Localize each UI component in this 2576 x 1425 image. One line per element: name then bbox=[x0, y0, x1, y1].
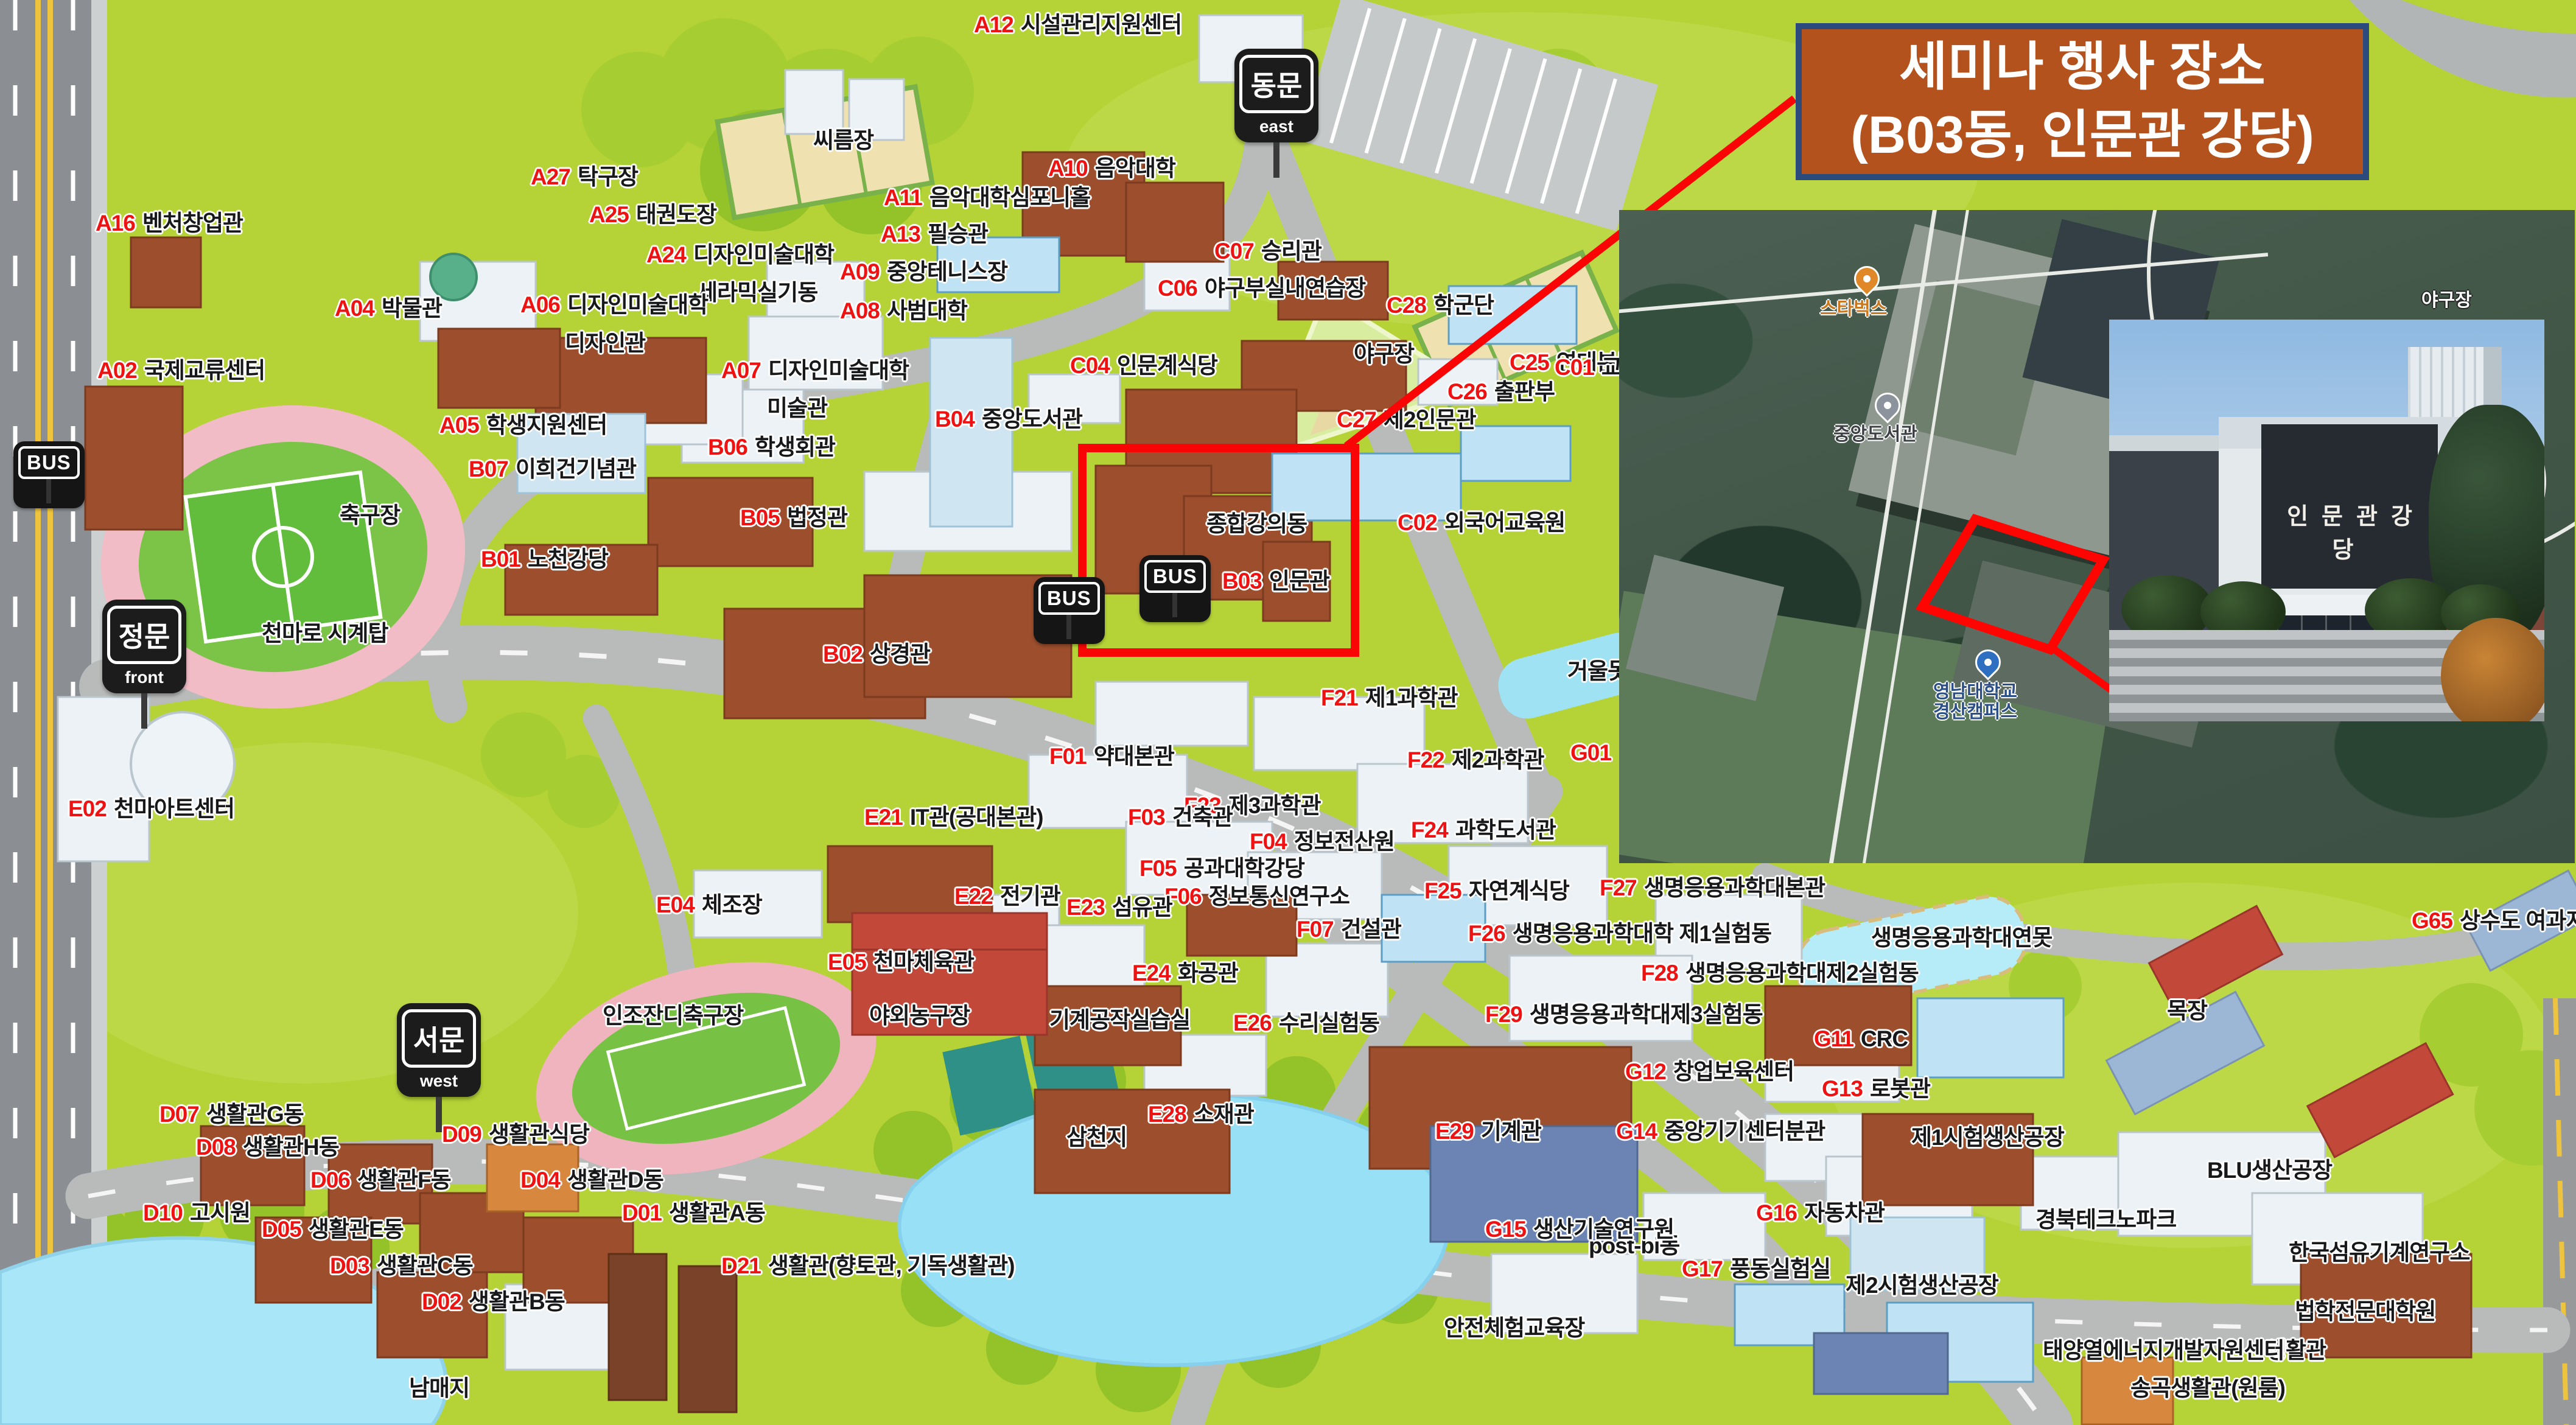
building-name: 탁구장 bbox=[578, 164, 638, 189]
building-name: 수리실험동 bbox=[1279, 1010, 1379, 1035]
gate-name: 정문 bbox=[107, 606, 181, 664]
map-label-B04: B04중앙도서관 bbox=[935, 408, 1082, 430]
building-name: 승리관 bbox=[1261, 239, 1321, 264]
map-label-천마로 시계탑: 천마로 시계탑 bbox=[262, 622, 388, 645]
satellite-poi-label: 중앙도서관 bbox=[1833, 424, 1917, 444]
building-code: F04 bbox=[1250, 829, 1287, 854]
building-name: 학생회관 bbox=[755, 435, 835, 460]
building-code: A02 bbox=[97, 358, 137, 383]
map-label-미술관: 미술관 bbox=[767, 397, 827, 419]
map-label-F04: F04정보전산원 bbox=[1250, 830, 1395, 853]
map-label-G16: G16자동차관 bbox=[1756, 1202, 1885, 1224]
gate-pole bbox=[1273, 142, 1279, 178]
building-code: B06 bbox=[708, 435, 747, 460]
building-code: A27 bbox=[531, 164, 570, 189]
building-name: 벤처창업관 bbox=[142, 211, 243, 236]
seminar-location-callout: 세미나 행사 장소 (B03동, 인문관 강당) bbox=[1796, 23, 2369, 180]
building-code: E05 bbox=[828, 950, 866, 975]
map-label-야외농구장: 야외농구장 bbox=[869, 1004, 970, 1027]
map-label-A16: A16벤처창업관 bbox=[96, 212, 243, 234]
map-label-G15: G15생산기술연구원 bbox=[1485, 1218, 1674, 1241]
building-code: B04 bbox=[935, 407, 975, 432]
building-name: 국제교류센터 bbox=[144, 358, 265, 383]
building-code: C02 bbox=[1398, 510, 1437, 535]
building-name: 약대본관 bbox=[1094, 744, 1174, 769]
bus-sign-pole bbox=[1172, 593, 1177, 617]
map-label-D08: D08생활관H동 bbox=[196, 1136, 339, 1158]
map-label-안전체험교육장: 안전체험교육장 bbox=[1444, 1317, 1584, 1339]
building-code: B07 bbox=[469, 457, 508, 481]
building-name: 시설관리지원센터 bbox=[1021, 12, 1181, 37]
building-name: 자동차관 bbox=[1804, 1200, 1885, 1225]
building-name: 창업보육센터 bbox=[1673, 1059, 1794, 1084]
bus-stop-label: BUS bbox=[18, 446, 80, 479]
building-name: 생활관(향토관, 기독생활관) bbox=[768, 1253, 1015, 1278]
map-label-F07: F07건설관 bbox=[1297, 918, 1401, 940]
map-label-야구장: 야구장 bbox=[1354, 343, 1414, 365]
building-code: G13 bbox=[1822, 1076, 1863, 1101]
building-code: G15 bbox=[1485, 1217, 1526, 1242]
building-code: E22 bbox=[954, 884, 993, 909]
building-name: 음악대학 bbox=[1095, 156, 1175, 181]
building-name: 종합강의동 bbox=[1206, 511, 1307, 536]
map-label-F27: F27생명응용과학대본관 bbox=[1600, 877, 1825, 899]
map-label-인조잔디축구장: 인조잔디축구장 bbox=[603, 1004, 743, 1027]
map-label-D02: D02생활관B동 bbox=[422, 1290, 565, 1313]
map-label-E04: E04체조장 bbox=[656, 894, 762, 916]
building-name: 건축관 bbox=[1172, 805, 1233, 830]
building-code: D01 bbox=[622, 1200, 662, 1225]
map-label-G01: G01 bbox=[1570, 741, 1619, 764]
building-code: A04 bbox=[335, 296, 374, 321]
building-code: A13 bbox=[881, 222, 920, 247]
map-label-E22: E22전기관 bbox=[954, 885, 1060, 908]
building-name: 공과대학강당 bbox=[1184, 856, 1304, 881]
map-label-경북테크노파크: 경북테크노파크 bbox=[2035, 1208, 2176, 1231]
map-label-C27: C27제2인문관 bbox=[1337, 408, 1476, 431]
map-label-C06: C06야구부실내연습장 bbox=[1158, 277, 1365, 299]
building-name: 생명응용과학대제2실험동 bbox=[1685, 961, 1919, 986]
gate-name-en: front bbox=[107, 664, 181, 688]
callout-line1: 세미나 행사 장소 bbox=[1899, 33, 2266, 102]
building-code: D10 bbox=[143, 1200, 183, 1225]
building-name: 생명응용과학대제3실험동 bbox=[1530, 1002, 1763, 1027]
map-label-A04: A04박물관 bbox=[335, 297, 442, 320]
building-name: 전기관 bbox=[1000, 884, 1060, 909]
map-label-D10: D10고시원 bbox=[143, 1202, 250, 1224]
building-code: D08 bbox=[196, 1135, 236, 1160]
building-name: 화공관 bbox=[1178, 961, 1238, 986]
building-code: F26 bbox=[1468, 921, 1505, 946]
map-label-D06: D06생활관F동 bbox=[310, 1169, 451, 1191]
building-code: E26 bbox=[1233, 1010, 1272, 1035]
building-code: A07 bbox=[721, 358, 761, 383]
building-name: 로봇관 bbox=[1870, 1076, 1930, 1101]
map-label-기계공작실습실: 기계공작실습실 bbox=[1049, 1009, 1190, 1031]
building-code: A12 bbox=[974, 12, 1013, 37]
building-code: E28 bbox=[1148, 1102, 1186, 1127]
building-name: 법정관 bbox=[787, 505, 847, 530]
bus-sign-pole bbox=[1066, 615, 1071, 639]
building-name: 박물관 bbox=[382, 296, 442, 321]
building-name: 상수도 여과지 bbox=[2460, 908, 2576, 933]
satellite-poi-label: 스타벅스 bbox=[1820, 299, 1887, 319]
building-name: 생활관G동 bbox=[206, 1102, 304, 1127]
map-label-축구장: 축구장 bbox=[340, 504, 400, 527]
gate-pole bbox=[436, 1097, 442, 1132]
building-name: 천마아트센터 bbox=[114, 796, 234, 821]
building-name: 생활관F동 bbox=[357, 1168, 451, 1192]
map-label-G17: G17풍동실험실 bbox=[1682, 1258, 1830, 1280]
building-name: 중앙기기센터분관 bbox=[1664, 1119, 1825, 1144]
building-name: 디자인미술대학 bbox=[693, 242, 834, 267]
map-label-G13: G13로봇관 bbox=[1822, 1077, 1930, 1100]
map-label-A24: A24디자인미술대학 bbox=[646, 243, 834, 266]
building-name: 건설관 bbox=[1341, 917, 1401, 942]
building-code: A05 bbox=[439, 413, 479, 438]
map-label-C26: C26출판부 bbox=[1447, 380, 1555, 403]
map-label-제1시험생산공장: 제1시험생산공장 bbox=[1911, 1126, 2064, 1149]
map-label-F24: F24과학도서관 bbox=[1411, 819, 1556, 841]
map-label-E21: E21IT관(공대본관) bbox=[864, 806, 1043, 828]
building-name: 법학전문대학원 bbox=[2295, 1299, 2435, 1324]
map-label-D07: D07생활관G동 bbox=[159, 1103, 304, 1126]
building-name: 사범대학 bbox=[887, 298, 967, 323]
building-name: IT관(공대본관) bbox=[910, 805, 1043, 830]
building-code: A25 bbox=[589, 202, 629, 227]
building-code: F27 bbox=[1600, 875, 1637, 900]
building-code: A06 bbox=[520, 292, 560, 317]
gate-name: 동문 bbox=[1239, 55, 1314, 113]
building-name: 제2인문관 bbox=[1384, 407, 1476, 432]
map-label-A12: A12시설관리지원센터 bbox=[974, 13, 1181, 36]
map-label-E26: E26수리실험동 bbox=[1233, 1012, 1379, 1034]
map-label-A07: A07디자인미술대학 bbox=[721, 359, 909, 382]
map-label-법학전문대학원: 법학전문대학원 bbox=[2295, 1300, 2435, 1323]
building-name: 천마체육관 bbox=[873, 950, 974, 975]
map-label-E29: E29기계관 bbox=[1435, 1120, 1541, 1143]
building-photo-inset: 인문관강당 bbox=[2109, 320, 2544, 721]
map-label-G65: G65상수도 여과지 bbox=[2412, 909, 2576, 932]
building-name: 상경관 bbox=[870, 642, 930, 667]
campus-map-page: { "colors":{"accent_red":"#f90505","code… bbox=[0, 0, 2576, 1425]
map-label-F26: F26생명응용과학대학 제1실험동 bbox=[1468, 922, 1771, 945]
building-name: 태권도장 bbox=[636, 202, 716, 227]
satellite-poi-label: 영남대학교경산캠퍼스 bbox=[1933, 682, 2017, 722]
building-code: D02 bbox=[422, 1289, 461, 1314]
map-label-송곡생활관(원룸): 송곡생활관(원룸) bbox=[2130, 1377, 2285, 1399]
building-name: 제2시험생산공장 bbox=[1846, 1273, 1998, 1298]
building-code: F25 bbox=[1424, 878, 1461, 903]
building-code: G16 bbox=[1756, 1200, 1797, 1225]
building-name: 음악대학심포니홀 bbox=[929, 185, 1090, 210]
map-label-생명응용과학대연못: 생명응용과학대연못 bbox=[1871, 926, 2052, 949]
building-code: E04 bbox=[656, 892, 695, 917]
building-code: C07 bbox=[1214, 239, 1254, 264]
map-label-A09: A09중앙테니스장 bbox=[840, 261, 1007, 283]
map-label-A08: A08사범대학 bbox=[840, 299, 967, 322]
building-code: F07 bbox=[1297, 917, 1334, 942]
map-label-C04: C04인문계식당 bbox=[1070, 354, 1217, 377]
building-name: 학군단 bbox=[1433, 293, 1494, 318]
map-label-F05: F05공과대학강당 bbox=[1139, 857, 1304, 880]
building-code: D05 bbox=[262, 1217, 301, 1242]
building-name: 생활관H동 bbox=[243, 1135, 339, 1160]
building-code: C25 bbox=[1510, 350, 1549, 375]
map-label-목장: 목장 bbox=[2167, 1000, 2207, 1022]
map-label-G12: G12창업보육센터 bbox=[1625, 1060, 1794, 1083]
map-label-D01: D01생활관A동 bbox=[622, 1202, 765, 1224]
map-label-씨름장: 씨름장 bbox=[813, 129, 873, 152]
building-name: 야구장 bbox=[1354, 341, 1414, 366]
map-label-F22: F22제2과학관 bbox=[1407, 749, 1544, 771]
building-code: D03 bbox=[330, 1253, 369, 1278]
bus-stop-label: BUS bbox=[1144, 560, 1206, 593]
building-name: 필승관 bbox=[928, 222, 988, 247]
map-label-E28: E28소재관 bbox=[1148, 1103, 1254, 1126]
map-label-한국섬유기계연구소: 한국섬유기계연구소 bbox=[2289, 1241, 2469, 1264]
building-code: B01 bbox=[481, 547, 520, 572]
building-code: F21 bbox=[1321, 685, 1358, 710]
building-code: A10 bbox=[1048, 156, 1088, 181]
map-label-E24: E24화공관 bbox=[1132, 962, 1238, 984]
building-code: E23 bbox=[1066, 895, 1105, 920]
map-label-G11: G11CRC bbox=[1814, 1028, 1908, 1050]
callout-line2: (B03동, 인문관 강당) bbox=[1850, 102, 2314, 170]
building-name: 제1시험생산공장 bbox=[1911, 1125, 2064, 1150]
building-name: 노천강당 bbox=[528, 547, 608, 572]
gate-name-en: east bbox=[1239, 113, 1314, 138]
map-label-남매지: 남매지 bbox=[409, 1377, 469, 1399]
building-code: D21 bbox=[721, 1253, 761, 1278]
building-name: 생활관C동 bbox=[377, 1253, 473, 1278]
map-label-F01: F01약대본관 bbox=[1049, 745, 1174, 768]
building-code: C27 bbox=[1337, 407, 1376, 432]
building-name: 인문관 bbox=[1269, 569, 1329, 593]
building-name: 디자인미술대학 bbox=[768, 358, 909, 383]
building-code: A08 bbox=[840, 298, 880, 323]
building-name: 출판부 bbox=[1494, 379, 1555, 404]
photo-dark-facade: 인문관강당 bbox=[2261, 424, 2438, 589]
building-name: 안전체험교육장 bbox=[1444, 1315, 1584, 1340]
building-code: B02 bbox=[823, 642, 863, 667]
map-label-A10: A10음악대학 bbox=[1048, 157, 1175, 180]
building-name: 체조장 bbox=[702, 892, 762, 917]
map-label-D03: D03생활관C동 bbox=[330, 1255, 473, 1277]
map-label-F28: F28생명응용과학대제2실험동 bbox=[1641, 962, 1919, 984]
building-name: 기계관 bbox=[1481, 1119, 1541, 1144]
building-name: 풍동실험실 bbox=[1730, 1256, 1830, 1281]
building-name: 중앙테니스장 bbox=[887, 259, 1007, 284]
building-name: 삼천지 bbox=[1066, 1125, 1127, 1150]
satellite-poi-label-line2: 경산캠퍼스 bbox=[1933, 702, 2017, 722]
building-name: 생명응용과학대본관 bbox=[1644, 875, 1825, 900]
building-name: 생산기술연구원 bbox=[1533, 1217, 1674, 1242]
building-code: F24 bbox=[1411, 818, 1448, 842]
building-name: BLU생산공장 bbox=[2207, 1158, 2332, 1183]
map-label-D05: D05생활관E동 bbox=[262, 1218, 404, 1241]
map-label-F03: F03건축관 bbox=[1128, 806, 1233, 828]
map-label-삼천지: 삼천지 bbox=[1066, 1126, 1127, 1149]
building-code: F22 bbox=[1407, 748, 1444, 772]
building-code: F01 bbox=[1049, 744, 1087, 769]
building-name: 천마로 시계탑 bbox=[262, 621, 388, 646]
building-code: E02 bbox=[68, 796, 107, 821]
building-code: F05 bbox=[1139, 856, 1177, 881]
building-name: 소재관 bbox=[1194, 1102, 1254, 1127]
building-name: 외국어교육원 bbox=[1444, 510, 1565, 535]
building-name: 인문계식당 bbox=[1117, 353, 1217, 378]
building-code: E29 bbox=[1435, 1119, 1474, 1144]
building-name: 남매지 bbox=[409, 1376, 469, 1401]
map-label-A11: A11음악대학심포니홀 bbox=[884, 186, 1090, 209]
map-label-B05: B05법정관 bbox=[740, 506, 847, 529]
building-name: 섬유관 bbox=[1112, 895, 1172, 920]
building-code: C26 bbox=[1447, 379, 1487, 404]
building-name: 생활관E동 bbox=[309, 1217, 404, 1242]
map-label-C02: C02외국어교육원 bbox=[1398, 511, 1565, 534]
bus-stop-sign: BUS bbox=[1139, 555, 1211, 622]
gate-name: 서문 bbox=[402, 1009, 476, 1068]
map-label-종합강의동: 종합강의동 bbox=[1206, 513, 1307, 535]
map-label-태양열에너지개발자원센터: 태양열에너지개발자원센터 bbox=[2043, 1339, 2284, 1362]
building-code: B05 bbox=[740, 505, 780, 530]
building-name: 경북테크노파크 bbox=[2035, 1207, 2176, 1232]
building-code: G12 bbox=[1625, 1059, 1666, 1084]
map-label-디자인관: 디자인관 bbox=[565, 332, 645, 354]
building-code: D06 bbox=[310, 1168, 350, 1192]
gate-sign-west: 서문west bbox=[397, 1003, 481, 1132]
building-name: 야외농구장 bbox=[869, 1003, 970, 1028]
building-name: 생활관A동 bbox=[669, 1200, 765, 1225]
building-name: 제2과학관 bbox=[1452, 748, 1544, 772]
building-code: D07 bbox=[159, 1102, 199, 1127]
gate-pole bbox=[141, 693, 147, 729]
map-label-A13: A13필승관 bbox=[881, 223, 988, 245]
building-name: 고시원 bbox=[190, 1200, 250, 1225]
map-label-E23: E23섬유관 bbox=[1066, 896, 1172, 919]
map-label-E02: E02천마아트센터 bbox=[68, 797, 234, 820]
building-name: 자연계식당 bbox=[1469, 878, 1569, 903]
map-label-A27: A27탁구장 bbox=[531, 166, 638, 188]
map-label-E05: E05천마체육관 bbox=[828, 951, 974, 973]
building-name: 한국섬유기계연구소 bbox=[2289, 1240, 2469, 1265]
building-code: G17 bbox=[1682, 1256, 1723, 1281]
gate-name-en: west bbox=[402, 1068, 476, 1092]
bus-stop-sign: BUS bbox=[13, 441, 85, 508]
building-name: 생활관식당 bbox=[489, 1122, 589, 1147]
map-label-A06: A06디자인미술대학 bbox=[520, 293, 708, 316]
building-code: A09 bbox=[840, 259, 880, 284]
map-label-F21: F21제1과학관 bbox=[1321, 687, 1458, 709]
building-name: 송곡생활관(원룸) bbox=[2130, 1376, 2285, 1401]
building-name: 제3과학관 bbox=[1228, 793, 1321, 818]
map-label-B06: B06학생회관 bbox=[708, 436, 835, 458]
building-name: 디자인미술대학 bbox=[567, 292, 708, 317]
building-code: C28 bbox=[1387, 293, 1426, 318]
map-label-B02: B02상경관 bbox=[823, 643, 930, 665]
building-name: 디자인관 bbox=[565, 331, 645, 355]
building-code: F28 bbox=[1641, 961, 1678, 986]
gate-sign-east: 동문east bbox=[1234, 49, 1318, 178]
building-name: 정보통신연구소 bbox=[1209, 884, 1349, 909]
building-code: C01 bbox=[1555, 355, 1594, 380]
building-code: G11 bbox=[1814, 1026, 1853, 1051]
map-label-A02: A02국제교류센터 bbox=[97, 359, 265, 382]
building-name: 목장 bbox=[2167, 998, 2207, 1023]
map-label-D21: D21생활관(향토관, 기독생활관) bbox=[721, 1255, 1015, 1277]
bus-stop-sign: BUS bbox=[1034, 577, 1105, 644]
building-code: G65 bbox=[2412, 908, 2452, 933]
building-name: 과학도서관 bbox=[1455, 818, 1556, 842]
map-label-F06: F06정보통신연구소 bbox=[1164, 885, 1349, 908]
building-sign: 인문관강당 bbox=[2261, 497, 2438, 564]
bus-stop-label: BUS bbox=[1038, 582, 1100, 615]
building-code: E21 bbox=[864, 805, 903, 830]
building-code: A16 bbox=[96, 211, 135, 236]
map-label-B03: B03인문관 bbox=[1222, 570, 1329, 592]
building-code: C06 bbox=[1158, 276, 1197, 301]
building-name: 미술관 bbox=[767, 396, 827, 421]
building-name: 야구부실내연습장 bbox=[1205, 276, 1365, 301]
map-label-F29: F29생명응용과학대제3실험동 bbox=[1485, 1003, 1763, 1026]
building-name: 생명응용과학대연못 bbox=[1871, 925, 2052, 950]
building-name: 인조잔디축구장 bbox=[603, 1003, 743, 1028]
building-code: G14 bbox=[1616, 1119, 1657, 1144]
building-name: 정보전산원 bbox=[1294, 829, 1395, 854]
building-code: A24 bbox=[646, 242, 686, 267]
building-code: D04 bbox=[520, 1168, 560, 1192]
map-label-C28: C28학군단 bbox=[1387, 294, 1494, 317]
bus-sign-pole bbox=[46, 479, 51, 503]
map-label-A25: A25태권도장 bbox=[589, 203, 716, 226]
map-label-BLU생산공장: BLU생산공장 bbox=[2207, 1159, 2332, 1182]
satellite-area-label: 야구장 bbox=[2421, 290, 2472, 310]
map-label-B01: B01노천강당 bbox=[481, 548, 608, 570]
building-code: F29 bbox=[1485, 1002, 1522, 1027]
building-code: E24 bbox=[1132, 961, 1171, 986]
building-name: 생활관B동 bbox=[469, 1289, 565, 1314]
map-label-G14: G14중앙기기센터분관 bbox=[1616, 1120, 1825, 1143]
building-name: 씨름장 bbox=[813, 128, 873, 153]
map-label-세라믹실기동: 세라믹실기동 bbox=[697, 281, 817, 304]
building-code: F03 bbox=[1128, 805, 1165, 830]
building-name: 제1과학관 bbox=[1365, 685, 1458, 710]
map-label-A05: A05학생지원센터 bbox=[439, 414, 607, 436]
map-label-F25: F25자연계식당 bbox=[1424, 880, 1569, 902]
building-name: 생활관D동 bbox=[567, 1168, 663, 1192]
building-name: 세라믹실기동 bbox=[697, 280, 817, 305]
map-label-B07: B07이희건기념관 bbox=[469, 458, 636, 480]
building-name: 기계공작실습실 bbox=[1049, 1007, 1190, 1032]
building-code: B03 bbox=[1222, 569, 1262, 593]
building-name: 중앙도서관 bbox=[982, 407, 1082, 432]
map-label-C07: C07승리관 bbox=[1214, 240, 1321, 262]
building-name: 이희건기념관 bbox=[516, 457, 636, 481]
building-code: G01 bbox=[1570, 740, 1611, 765]
building-name: 생명응용과학대학 제1실험동 bbox=[1513, 921, 1771, 946]
map-label-D04: D04생활관D동 bbox=[520, 1169, 663, 1191]
building-name: 축구장 bbox=[340, 503, 400, 528]
building-code: A11 bbox=[884, 185, 922, 210]
building-name: 학생지원센터 bbox=[486, 413, 607, 438]
building-name: 태양열에너지개발자원센터 bbox=[2043, 1338, 2284, 1363]
building-name: CRC bbox=[1861, 1026, 1908, 1051]
map-label-제2시험생산공장: 제2시험생산공장 bbox=[1846, 1274, 1998, 1297]
gate-sign-front: 정문front bbox=[102, 600, 186, 729]
building-code: C04 bbox=[1070, 353, 1110, 378]
